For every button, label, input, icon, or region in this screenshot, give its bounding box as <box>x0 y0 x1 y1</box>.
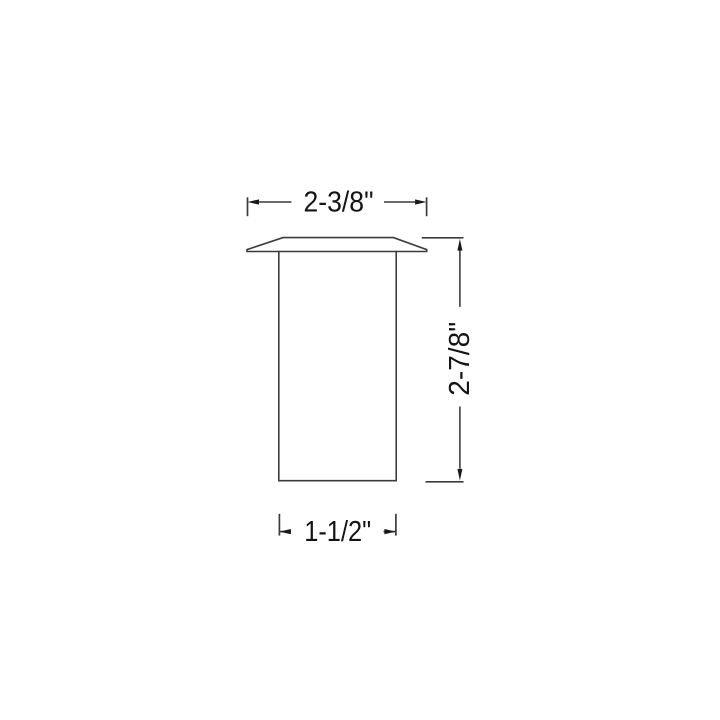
svg-text:1-1/2": 1-1/2" <box>304 516 371 548</box>
svg-text:2-3/8": 2-3/8" <box>304 187 374 219</box>
svg-text:2-7/8": 2-7/8" <box>444 322 476 396</box>
